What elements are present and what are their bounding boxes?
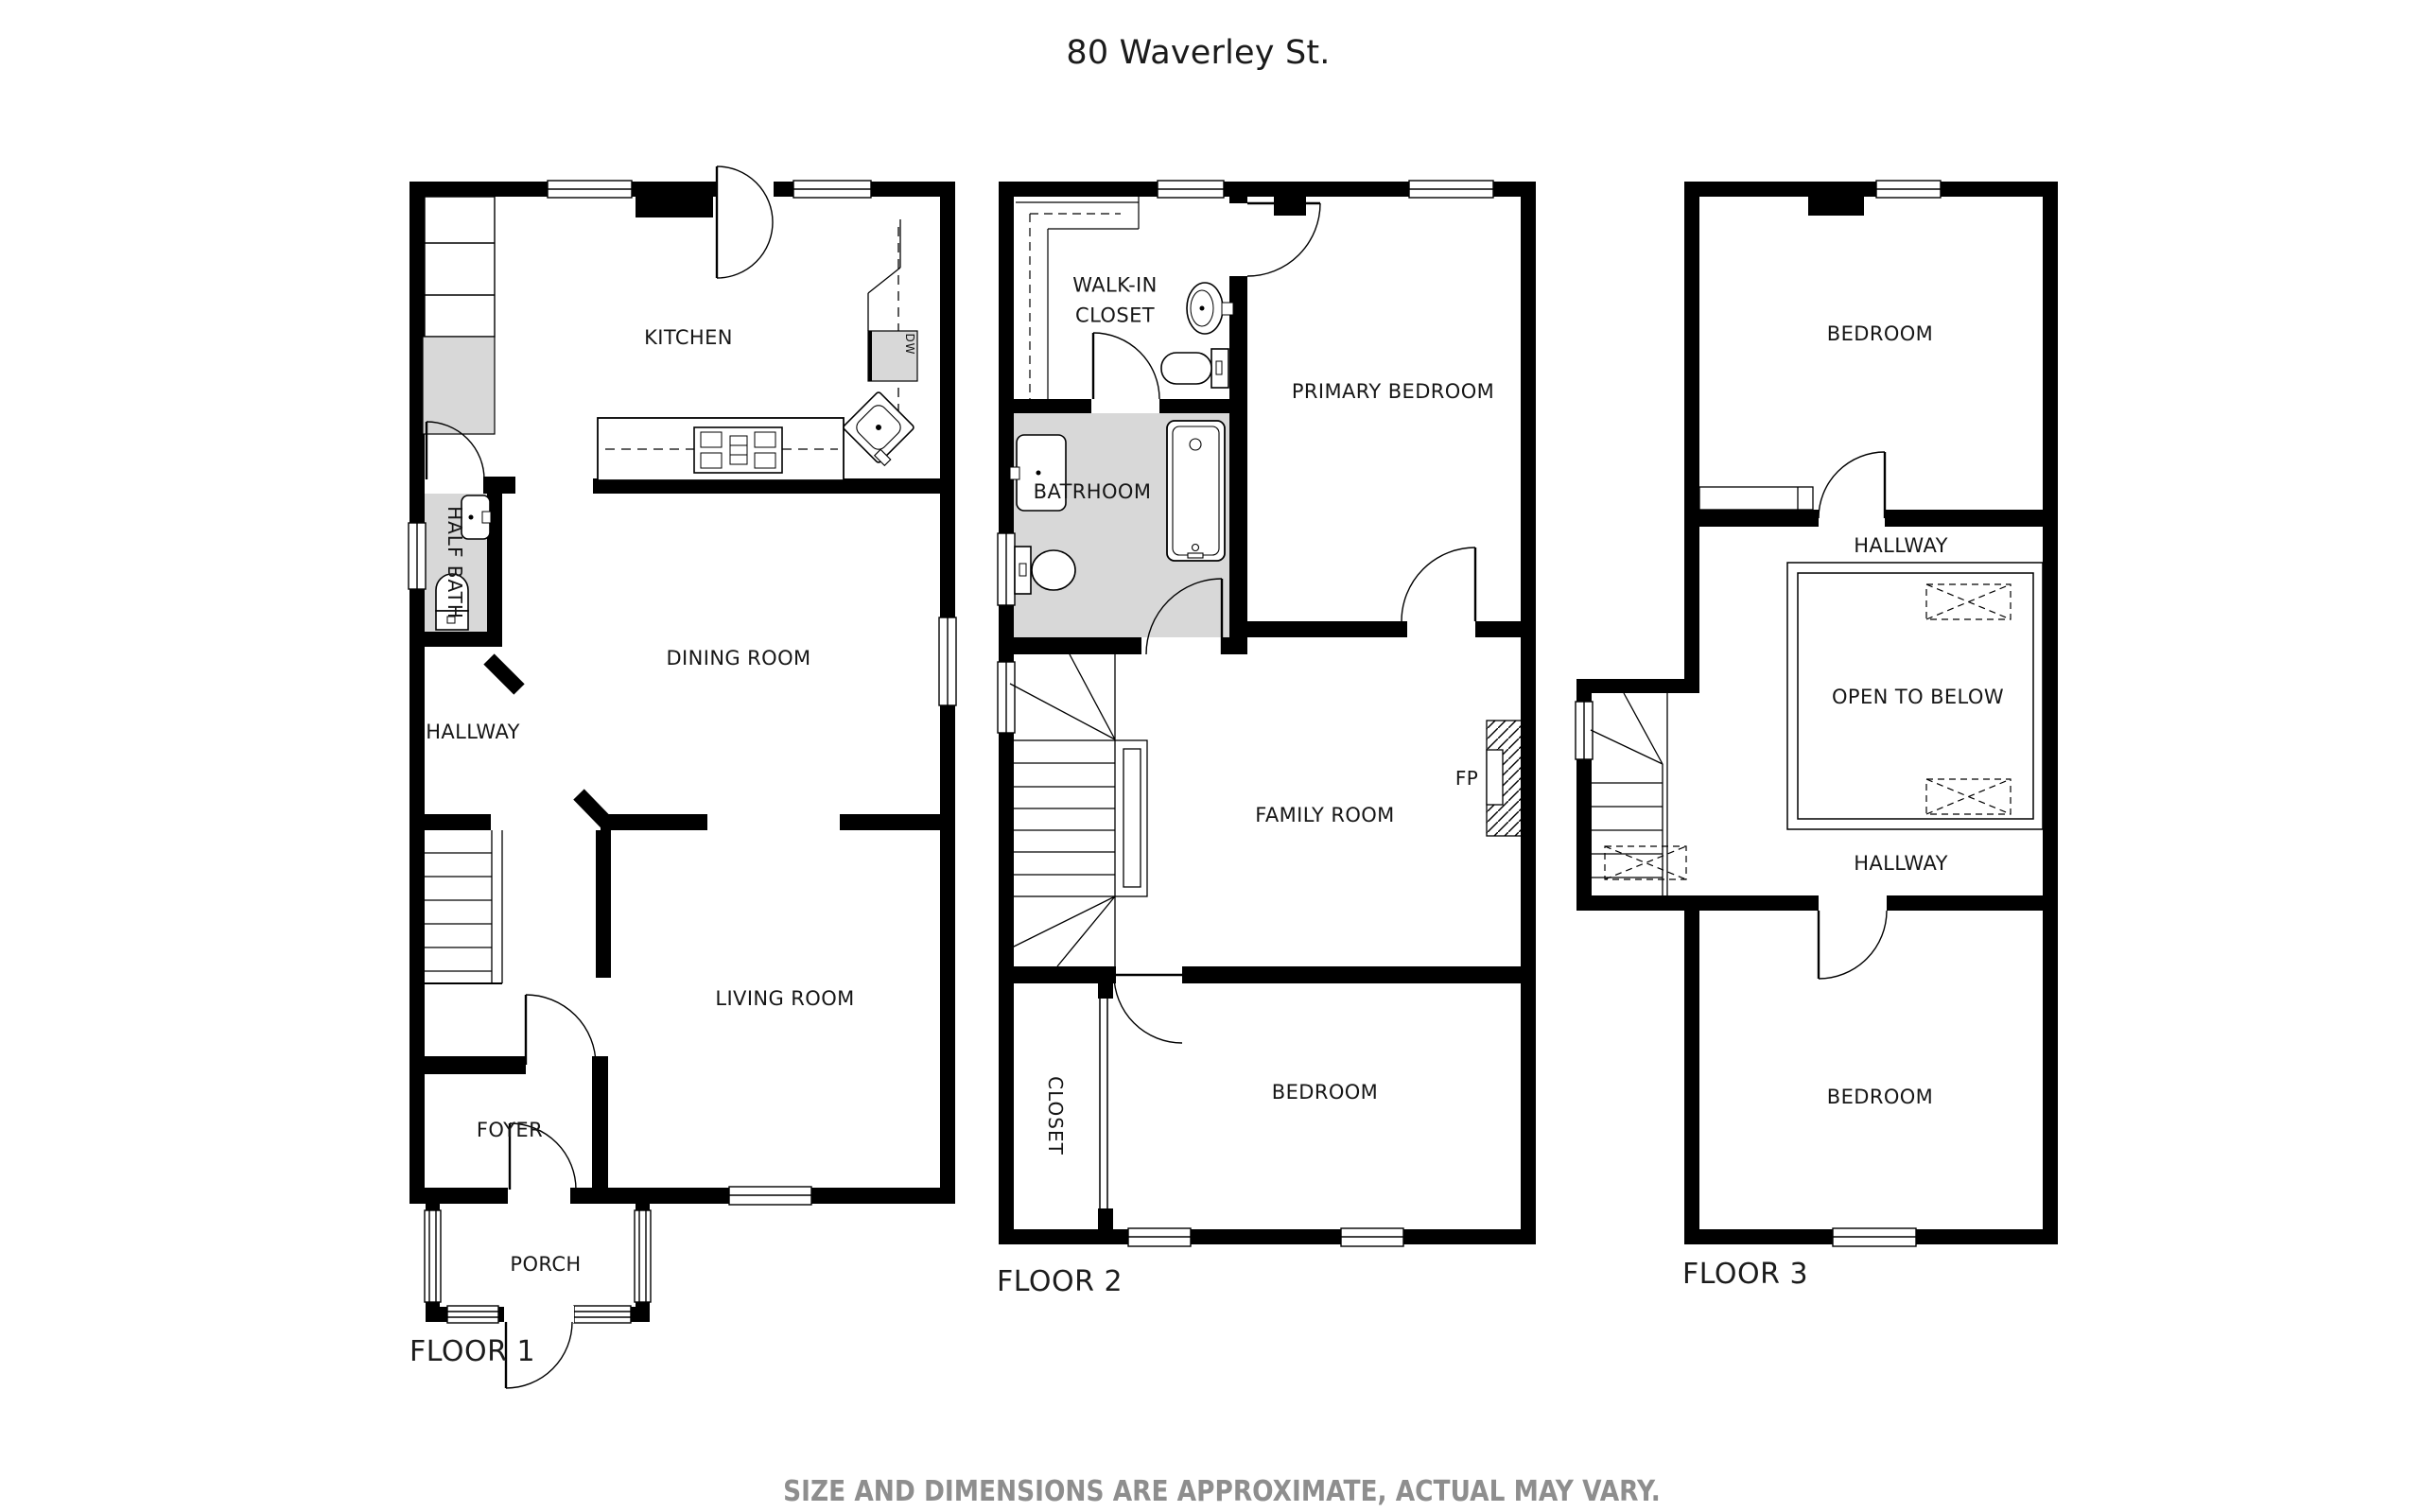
floor3-door-gaps [1819,510,1887,911]
floor2-caption: FLOOR 2 [997,1265,1123,1298]
fireplace-icon [1487,721,1526,836]
room-label-foyer: FOYER [477,1119,543,1141]
room-label-hallway-f3-top: HALLWAY [1854,534,1948,557]
fireplace-label: FP [1455,767,1478,790]
room-label-open-to-below: OPEN TO BELOW [1832,686,2004,708]
bathtub-icon [1167,421,1225,561]
floor2-plan [998,181,1536,1246]
room-label-family-room: FAMILY ROOM [1255,804,1394,826]
room-label-hallway-f1: HALLWAY [426,721,520,743]
closet-door [1100,999,1107,1208]
floorplan-drawing [0,0,2421,1512]
floor1-plan [409,166,956,1388]
floor3-caption: FLOOR 3 [1682,1258,1808,1291]
room-label-primary-bedroom: PRIMARY BEDROOM [1292,380,1494,403]
floor2-walls [999,182,1536,1244]
room-label-bedroom-f3-top: BEDROOM [1827,322,1933,345]
floor3-plan [1576,181,2058,1246]
room-label-dining-room: DINING ROOM [666,647,810,669]
disclaimer-text: SIZE AND DIMENSIONS ARE APPROXIMATE, ACT… [783,1475,1661,1508]
room-label-closet-f2: CLOSET [1044,1076,1067,1156]
room-label-bedroom-f3-bottom: BEDROOM [1827,1086,1933,1108]
floor3-walls [1576,182,2058,1244]
stairs-floor3 [1591,693,1667,895]
page-title: 80 Waverley St. [1066,34,1330,72]
room-label-kitchen: KITCHEN [644,326,733,349]
bathroom-toilet-icon [1015,547,1075,594]
stairs-floor1 [425,830,502,983]
dishwasher-label: DW [903,333,916,355]
room-label-porch: PORCH [510,1253,581,1276]
kitchen-cabinets [425,197,495,337]
stove-icon [694,427,782,473]
room-label-walk-in-closet: WALK-IN CLOSET [1032,271,1198,331]
room-label-living-room: LIVING ROOM [715,987,854,1010]
room-label-bathroom: BATRHOOM [1034,480,1152,503]
closet-shelf [1699,487,1813,510]
floorplan-page: 80 Waverley St. KITCHEN HALF BATH DINING… [0,0,2421,1512]
room-label-half-bath: HALF BATH [444,506,466,619]
kitchen-sink-icon [843,391,919,468]
floor1-caption: FLOOR 1 [409,1335,535,1368]
stairs-floor2 [1010,654,1147,966]
room-label-hallway-f3-bottom: HALLWAY [1854,852,1948,875]
kitchen-counter-right [868,219,900,421]
vanity-toilet-icon [1161,349,1228,388]
skylight-icons [1605,584,2011,879]
refrigerator-icon [423,337,495,434]
floor1-door-gaps [504,181,774,1323]
room-label-bedroom-f2: BEDROOM [1272,1081,1378,1104]
